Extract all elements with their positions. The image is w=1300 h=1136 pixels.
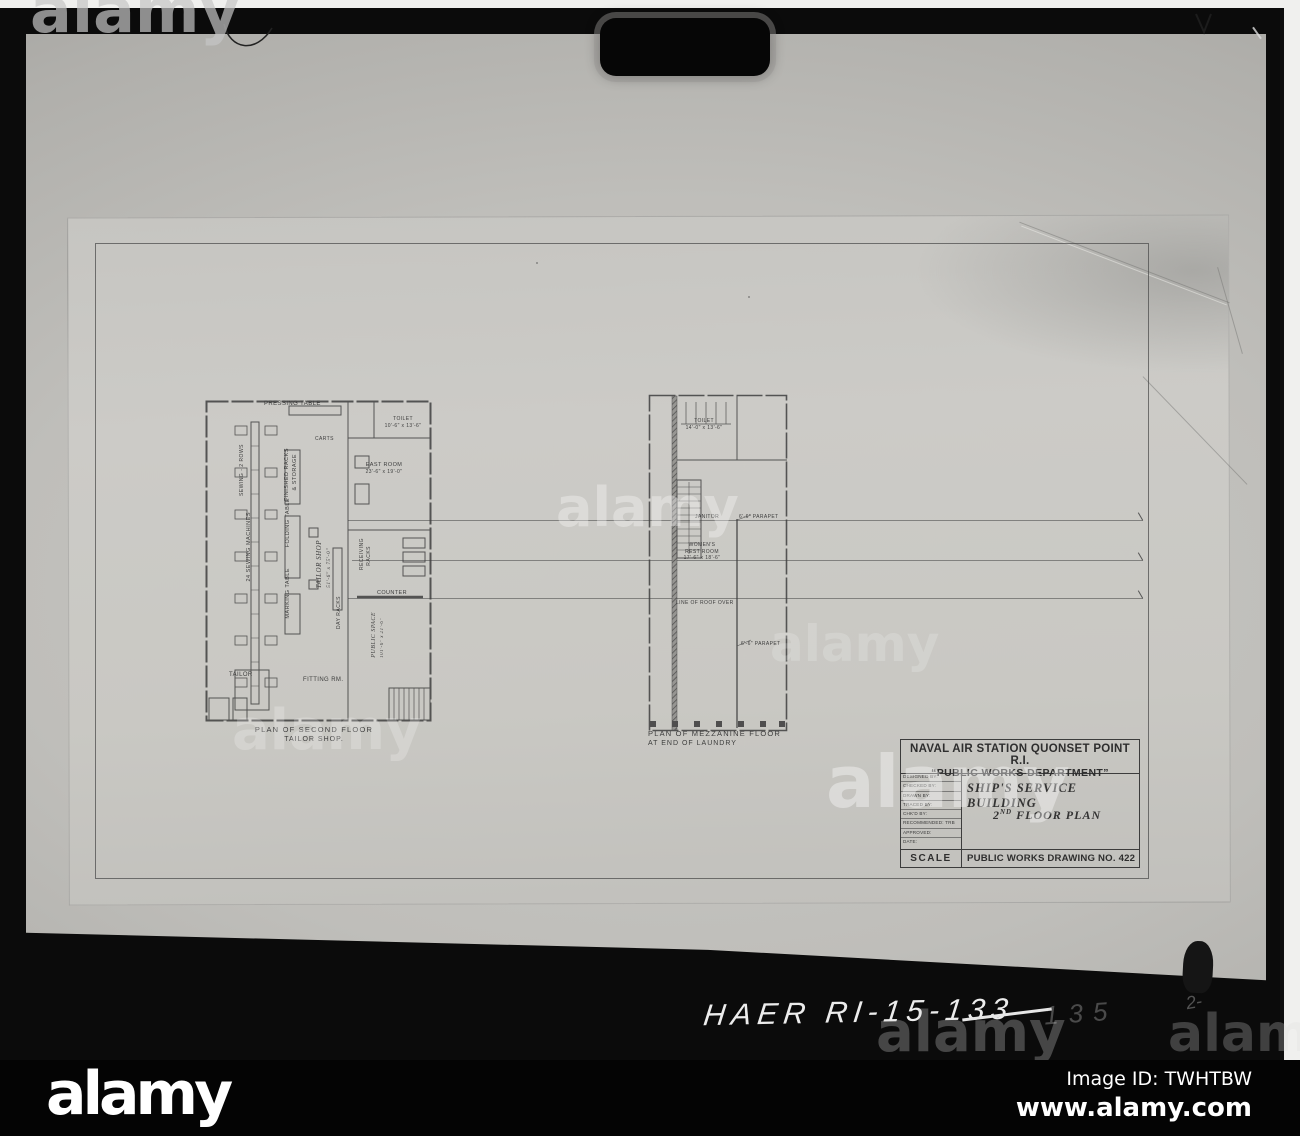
- corner-scribble: 2-: [1184, 991, 1203, 1014]
- label-toilet: TOILET 10'-6" x 13'-6": [382, 416, 424, 429]
- label-tailor-shop-dims: 51'-6" x 75'-0": [326, 548, 332, 588]
- left-plan-caption-line2: TAILOR SHOP.: [238, 735, 390, 744]
- alamy-logo: alamy: [46, 1059, 229, 1129]
- label-sewing-rows: SEWING - 2 ROWS: [239, 444, 245, 496]
- label-counter: COUNTER: [377, 590, 407, 597]
- left-plan-caption: PLAN OF SECOND FLOOR TAILOR SHOP.: [238, 725, 390, 744]
- agency-name: NAVAL AIR STATION QUONSET POINT R.I.: [901, 743, 1139, 767]
- left-plan-caption-line1: PLAN OF SECOND FLOOR: [238, 725, 390, 735]
- pen-mark-curve: [222, 22, 276, 54]
- label-finished-racks-2: & STORAGE: [292, 454, 298, 491]
- label-public-space-dims: 101'-6" x 21'-6": [380, 618, 385, 658]
- plan-number: 2: [993, 808, 1000, 822]
- plan-ordinal: ND: [1000, 808, 1012, 816]
- label-fitting-room: FITTING RM.: [303, 677, 343, 685]
- alamy-url: www.alamy.com: [1016, 1093, 1252, 1123]
- film-holder-notch: [600, 18, 770, 76]
- haer-prefix: HAER RI-15-: [702, 994, 948, 1032]
- title-block-bottom-band: SCALE PUBLIC WORKS DRAWING NO. 422: [901, 849, 1139, 868]
- mezzanine-floor-plan: [648, 394, 788, 732]
- label-finished-racks: FINISHED RACKS: [284, 448, 290, 501]
- drawing-number: PUBLIC WORKS DRAWING NO. 422: [967, 850, 1135, 868]
- image-id: Image ID: TWHTBW: [1016, 1068, 1252, 1090]
- label-sewing-machines: 24 SEWING MACHINES: [246, 512, 252, 582]
- dark-blob-artifact: [1182, 940, 1215, 993]
- row-recommended-value: TRB: [945, 820, 955, 825]
- row-date: DATE:: [901, 838, 961, 849]
- row-chkd-by: CHK'D BY:: [901, 810, 961, 819]
- label-east-room-dims: 23'-6" x 19'-0": [358, 469, 410, 476]
- label-carts: CARTS: [315, 436, 334, 443]
- footer-right-block: Image ID: TWHTBW www.alamy.com: [1016, 1068, 1252, 1123]
- row-approved: APPROVED:: [901, 829, 961, 838]
- plan-title: 2ND FLOOR PLAN: [993, 808, 1101, 823]
- handwritten-haer-number: HAER RI-15-133: [702, 993, 1016, 1033]
- label-public-space: PUBLIC SPACE: [371, 612, 377, 658]
- label-womens-dims: 17'-6" x 18'-6": [679, 555, 725, 562]
- row-designed-by: DESIGNED BY:: [901, 773, 961, 782]
- label-marking-table: MARKING TABLE: [285, 568, 291, 619]
- haer-faint-correction: 135: [1043, 995, 1118, 1031]
- label-parapet-lower: 6'-6" PARAPET: [741, 641, 781, 648]
- label-womens-rest-room: WOMEN'S REST ROOM 17'-6" x 18'-6": [679, 542, 725, 562]
- approval-rows: DESIGNED BY: CHECKED BY: DRAWN BY: TRACE…: [901, 773, 961, 849]
- label-janitor: JANITOR: [695, 514, 719, 521]
- center-plan-caption-line2: AT END OF LAUNDRY: [648, 739, 781, 748]
- label-parapet-upper: 6'-6" PARAPET: [739, 514, 779, 521]
- label-day-racks: DAY RACKS: [336, 596, 342, 629]
- row-recommended-label: RECOMMENDED:: [903, 820, 944, 825]
- label-east-room: EAST ROOM 23'-6" x 19'-0": [358, 462, 410, 476]
- label-receiving-racks-2: RACKS: [366, 546, 372, 566]
- haer-struck-number: 133: [943, 993, 1015, 1027]
- row-checked-by: CHECKED BY:: [901, 782, 961, 791]
- label-pressing-table: PRESSING TABLE: [264, 401, 321, 409]
- label-tailor-shop: TAILOR SHOP: [315, 540, 323, 588]
- dust-speck: [536, 262, 538, 264]
- center-plan-caption: PLAN OF MEZZANINE FLOOR AT END OF LAUNDR…: [648, 729, 781, 748]
- alamy-footer-bar: alamy Image ID: TWHTBW www.alamy.com: [0, 1060, 1300, 1136]
- title-block-header: NAVAL AIR STATION QUONSET POINT R.I. “PU…: [901, 740, 1139, 774]
- label-toilet-dims: 10'-6" x 13'-6": [382, 423, 424, 430]
- scale-label: SCALE: [901, 850, 961, 868]
- row-traced-by: TRACED BY:: [901, 801, 961, 810]
- row-recommended: RECOMMENDED: TRB: [901, 819, 961, 828]
- label-mezz-toilet-dims: 14'-0" x 13'-6": [682, 425, 726, 432]
- plan-text: FLOOR PLAN: [1012, 808, 1101, 822]
- label-tailor: TAILOR: [229, 672, 253, 680]
- title-block: NAVAL AIR STATION QUONSET POINT R.I. “PU…: [900, 739, 1140, 868]
- row-drawn-by: DRAWN BY:: [901, 792, 961, 801]
- building-name: SHIP'S SERVICE BUILDING: [967, 781, 1139, 811]
- label-folding-table: FOLDING TABLE: [285, 498, 291, 547]
- center-plan-caption-line1: PLAN OF MEZZANINE FLOOR: [648, 729, 781, 739]
- label-roof-line: LINE OF ROOF OVER: [676, 600, 734, 607]
- label-receiving-racks: RECEIVING: [359, 538, 365, 570]
- label-east-room-name: EAST ROOM: [358, 462, 410, 469]
- dust-speck: [748, 296, 750, 298]
- label-mezz-toilet: TOILET 14'-0" x 13'-6": [682, 418, 726, 431]
- pen-mark-v: [1193, 12, 1215, 36]
